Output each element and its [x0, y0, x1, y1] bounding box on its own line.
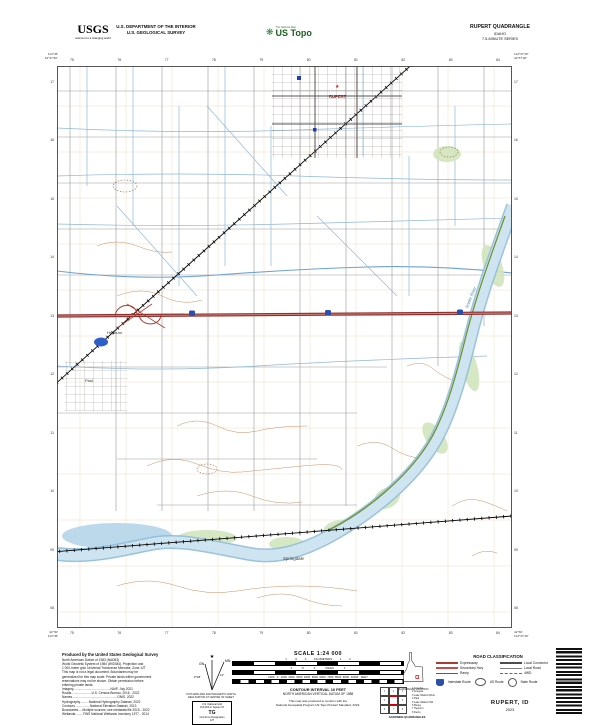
- list-item: 80: [307, 58, 311, 62]
- list-item: 7: [389, 705, 398, 714]
- expressway-line-sample: [436, 662, 458, 664]
- mn-angle: 11°: [220, 673, 225, 677]
- list-item: 3: [398, 687, 407, 696]
- list-item: 16: [514, 138, 530, 142]
- connector-line-sample: [500, 662, 522, 664]
- road-legend-items: Expressway Local Connector Secondary Hwy…: [436, 661, 560, 675]
- city-star-icon: ★: [335, 84, 340, 90]
- list-item: 15: [514, 197, 530, 201]
- list-item: 2: [389, 687, 398, 696]
- legend-label: Ramp: [460, 671, 469, 675]
- list-item: 1: [380, 687, 389, 696]
- town-rupert: [272, 66, 402, 158]
- list-item: 81: [354, 631, 358, 635]
- list-item: 17: [38, 80, 54, 84]
- legend-local-connector: Local Connector: [500, 661, 560, 665]
- credit-lines: North American Datum of 1983 (NAD83)Worl…: [62, 658, 192, 716]
- gn-label: GN: [199, 662, 205, 666]
- interstate-shield-icon: [325, 310, 331, 316]
- list-item: 79: [259, 631, 263, 635]
- grid-ticks-right: 17161514131211100908: [514, 80, 530, 610]
- grid-ticks-bottom: 75767778798081828384: [70, 631, 500, 635]
- list-item: 17: [514, 80, 530, 84]
- corner-lon: 113°45': [18, 634, 58, 638]
- map-area: RUPERT ★ Heyburn Paul Springdale Snake R…: [57, 66, 512, 628]
- shield-label: US Route: [490, 680, 504, 684]
- list-item: 15: [38, 197, 54, 201]
- department-heading: U.S. DEPARTMENT OF THE INTERIOR U.S. GEO…: [96, 24, 216, 36]
- list-item: 84: [496, 58, 500, 62]
- sheet-name-block: RUPERT, ID 2023: [460, 700, 560, 712]
- list-item: 82: [401, 631, 405, 635]
- vegetation: [87, 146, 509, 556]
- list-item: 80: [307, 631, 311, 635]
- list-item: 08: [38, 606, 54, 610]
- quadrangle-title-block: RUPERT QUADRANGLE IDAHO 7.5-MINUTE SERIE…: [428, 24, 572, 43]
- school-building-icon: [313, 128, 317, 132]
- produced-by: Produced by the United States Geological…: [62, 652, 192, 657]
- corner-coord-tr: 113°37'30" 42°37'30": [514, 52, 554, 60]
- list-item: 83: [449, 58, 453, 62]
- list-item: 77: [165, 631, 169, 635]
- orchard-outlines: [113, 147, 458, 474]
- town-paul: [65, 338, 127, 412]
- quad-series: 7.5-MINUTE SERIES: [428, 37, 572, 43]
- legend-ramp: Ramp: [436, 671, 496, 675]
- list-item: 16: [38, 138, 54, 142]
- list-item: 09: [514, 548, 530, 552]
- list-item: 78: [212, 58, 216, 62]
- true-north-star-icon: ★: [210, 654, 215, 660]
- label-paul: Paul: [85, 378, 93, 383]
- usng-gzd: 12T: [193, 719, 231, 722]
- list-item: 83: [449, 631, 453, 635]
- usgs-topo-sheet: USGS science for a changing world U.S. D…: [0, 0, 600, 725]
- list-item: 12: [38, 372, 54, 376]
- ramp-line-sample: [436, 673, 458, 674]
- legend-4wd: 4WD: [500, 671, 560, 675]
- legend-secondary-hwy: Secondary Hwy: [436, 666, 496, 670]
- 4wd-line-sample: [500, 673, 522, 674]
- state-route-shield-icon: [508, 678, 517, 687]
- list-item: 14: [514, 255, 530, 259]
- list-item: 10: [38, 489, 54, 493]
- adjoining-caption: ADJOINING QUADRANGLES: [368, 716, 446, 719]
- sheet-year: 2023: [460, 708, 560, 712]
- interstate-shield-icon: [189, 311, 195, 317]
- list-item: 5: [398, 696, 407, 705]
- list-item: Wetlands.........FWS National Wetlands I…: [62, 712, 192, 716]
- list-item: 79: [259, 58, 263, 62]
- legend-expressway: Expressway: [436, 661, 496, 665]
- label-springdale: Springdale: [283, 556, 305, 561]
- road-legend-title: ROAD CLASSIFICATION: [436, 654, 560, 659]
- legend-label: Local Connector: [524, 661, 548, 665]
- list-item: 77: [165, 58, 169, 62]
- legend-label: 4WD: [524, 671, 531, 675]
- list-item: 6: [380, 705, 389, 714]
- usgs-tagline: science for a changing world: [68, 36, 118, 40]
- grid-ticks-top: 75767778798081828384: [70, 58, 500, 62]
- state-locator: QUADRANGLE LOCATION: [390, 652, 436, 691]
- interstate-shield-icon: [436, 679, 444, 686]
- route-shields-row: Interstate Route US Route State Route: [436, 678, 560, 687]
- legend-local-road: Local Road: [500, 666, 560, 670]
- interstate-highway: [57, 304, 512, 328]
- legend-label: Expressway: [460, 661, 478, 665]
- list-item: 11: [514, 431, 530, 435]
- label-heyburn: Heyburn: [107, 330, 122, 335]
- adjoining-quads-names: 1 Scandia2 Acequia3 Lake Walcott West4 P…: [412, 687, 460, 714]
- road-classification-legend: ROAD CLASSIFICATION Expressway Local Con…: [436, 654, 560, 687]
- list-item: 81: [354, 58, 358, 62]
- label-rupert: RUPERT: [329, 94, 347, 99]
- corner-lat: 42°37'30": [18, 56, 58, 60]
- corner-lat: 42°37'30": [514, 56, 554, 60]
- usng-box: U.S. National Grid 100,000-m Square ID T…: [192, 701, 232, 725]
- list-item: 14: [38, 255, 54, 259]
- ustopo-flower-icon: ❋: [266, 28, 274, 37]
- list-item: [389, 696, 398, 705]
- corner-coord-bl: 42°30' 113°45': [18, 630, 58, 638]
- list-item: 8 Declo: [412, 711, 460, 714]
- corner-lon: 113°37'30": [514, 634, 554, 638]
- list-item: 82: [401, 58, 405, 62]
- dept-line2: U.S. GEOLOGICAL SURVEY: [96, 30, 216, 36]
- list-item: 13: [514, 314, 530, 318]
- list-item: 75: [70, 631, 74, 635]
- grid-ticks-left: 17161514131211100908: [38, 80, 54, 610]
- topo-map-svg: RUPERT ★ Heyburn Paul Springdale Snake R…: [57, 66, 512, 628]
- sheet-name: RUPERT, ID: [460, 700, 560, 706]
- list-item: 84: [496, 631, 500, 635]
- list-item: 75: [70, 58, 74, 62]
- shield-label: State Route: [521, 680, 538, 684]
- idaho-outline-icon: [396, 652, 430, 682]
- list-item: 09: [38, 548, 54, 552]
- shield-label: Interstate Route: [448, 680, 471, 684]
- local-line-sample: [500, 668, 522, 669]
- production-credits: Produced by the United States Geological…: [62, 652, 192, 716]
- ustopo-name: US Topo: [276, 29, 312, 38]
- list-item: 10: [514, 489, 530, 493]
- ustopo-logo: ❋ The National Map US Topo: [266, 26, 336, 38]
- list-item: 12: [514, 372, 530, 376]
- list-item: 76: [117, 631, 121, 635]
- list-item: 76: [117, 58, 121, 62]
- list-item: 13: [38, 314, 54, 318]
- list-item: 08: [514, 606, 530, 610]
- corner-coord-br: 42°30' 113°37'30": [514, 630, 554, 638]
- corner-coord-tl: 113°45' 42°37'30": [18, 52, 58, 60]
- gn-angle: 0°18': [194, 675, 201, 679]
- school-building-icon: [297, 76, 301, 80]
- scale-bar-feet: [232, 679, 404, 683]
- us-route-shield-icon: [475, 678, 486, 686]
- list-item: 11: [38, 431, 54, 435]
- legend-label: Secondary Hwy: [460, 666, 483, 670]
- interstate-shield-icon: [457, 310, 463, 316]
- list-item: 78: [212, 631, 216, 635]
- secondary-line-sample: [436, 667, 458, 669]
- reservoir: [94, 338, 108, 347]
- quad-title: RUPERT QUADRANGLE: [428, 24, 572, 32]
- adjoining-quads-grid: 12345678: [380, 687, 407, 714]
- list-item: 4: [380, 696, 389, 705]
- legend-label: Local Road: [524, 666, 541, 670]
- list-item: 8: [398, 705, 407, 714]
